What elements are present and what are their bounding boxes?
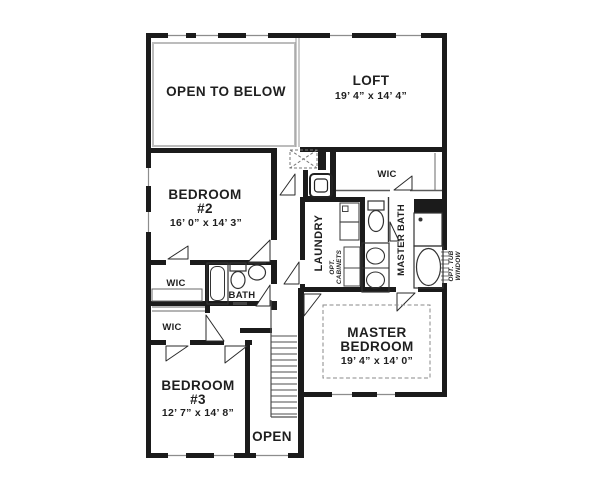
door-master-wic bbox=[394, 176, 412, 190]
door-laundry bbox=[284, 262, 299, 284]
master-wic-label: WIC bbox=[377, 169, 396, 180]
bedroom2-number: #2 bbox=[197, 201, 213, 216]
laundry-fixtures bbox=[340, 203, 360, 286]
door-wic-lower bbox=[206, 315, 224, 341]
master-bedroom-dims: 19’ 4” x 14’ 0” bbox=[341, 355, 413, 367]
master-bath-label: MASTER BATH bbox=[396, 204, 407, 276]
door-loft-hall bbox=[280, 174, 295, 195]
opt-tub-window-label-1: OPT. TUB bbox=[448, 250, 455, 281]
bedroom2-dims: 16’ 0” x 14’ 3” bbox=[170, 217, 242, 229]
vanity-sink-2-icon bbox=[367, 272, 385, 288]
bedroom2-label: BEDROOM bbox=[168, 187, 241, 202]
linen-closet bbox=[290, 150, 317, 168]
loft-divider-line bbox=[296, 38, 299, 147]
washer-knob bbox=[343, 206, 349, 212]
wic-lower-shelf bbox=[152, 307, 205, 311]
shower-drain bbox=[419, 218, 423, 222]
floor-plan-canvas: OPEN TO BELOW LOFT 19’ 4” x 14’ 4” BEDRO… bbox=[0, 0, 615, 500]
bath-label: BATH bbox=[229, 290, 256, 301]
dryer-icon bbox=[340, 222, 359, 240]
door-wic-hall bbox=[168, 246, 188, 259]
staircase bbox=[271, 300, 297, 417]
utility-fixture-inner bbox=[315, 179, 328, 192]
wic-lower-label: WIC bbox=[162, 322, 181, 333]
opt-cabinets-label-1: OPT. bbox=[329, 259, 336, 274]
door-bedroom3 bbox=[225, 346, 247, 363]
door-master-bedroom bbox=[304, 294, 321, 316]
utility-fixture-outer bbox=[310, 174, 332, 197]
master-tub-basin bbox=[417, 249, 441, 286]
stair-treads bbox=[271, 336, 297, 414]
shower-icon bbox=[414, 213, 442, 246]
utility-fixture bbox=[310, 174, 332, 197]
master-bedroom-label-1: MASTER bbox=[347, 325, 406, 340]
vanity-sink-1-icon bbox=[367, 248, 385, 264]
loft-label: LOFT bbox=[353, 73, 390, 88]
door-bath bbox=[256, 285, 270, 306]
loft-dims: 19’ 4” x 14’ 4” bbox=[335, 90, 407, 102]
master-tub-icon bbox=[414, 246, 443, 288]
bathtub-basin bbox=[211, 267, 225, 301]
wic-hall-shelf bbox=[152, 289, 202, 301]
master-bedroom-label-2: BEDROOM bbox=[340, 339, 413, 354]
sink-icon bbox=[249, 265, 266, 280]
laundry-label: LAUNDRY bbox=[313, 214, 325, 271]
floor-plan-drawing: OPEN TO BELOW LOFT 19’ 4” x 14’ 4” BEDRO… bbox=[0, 0, 615, 500]
master-toilet-tank-icon bbox=[368, 201, 384, 210]
bedroom3-number: #3 bbox=[190, 392, 206, 407]
linen-x-icon bbox=[290, 150, 317, 168]
stair-rails bbox=[271, 300, 297, 417]
door-master-bath bbox=[397, 293, 415, 311]
bedroom3-dims: 12’ 7” x 14’ 8” bbox=[162, 407, 234, 419]
opt-cabinets-outline bbox=[344, 247, 360, 286]
room-labels: OPEN TO BELOW LOFT 19’ 4” x 14’ 4” BEDRO… bbox=[161, 73, 462, 444]
master-toilet-bowl-icon bbox=[369, 211, 384, 232]
door-bedroom3-closet bbox=[166, 346, 188, 361]
wic-hall-label: WIC bbox=[166, 278, 185, 289]
opt-cabinets-label-2: CABINETS bbox=[336, 249, 343, 284]
opt-tub-window-label-2: WINDOW bbox=[455, 251, 462, 281]
bedroom3-label: BEDROOM bbox=[161, 378, 234, 393]
open-to-below-label: OPEN TO BELOW bbox=[166, 84, 286, 99]
door-bedroom2 bbox=[248, 240, 270, 262]
open-stair-label: OPEN bbox=[252, 429, 292, 444]
toilet-bowl-icon bbox=[231, 272, 245, 289]
